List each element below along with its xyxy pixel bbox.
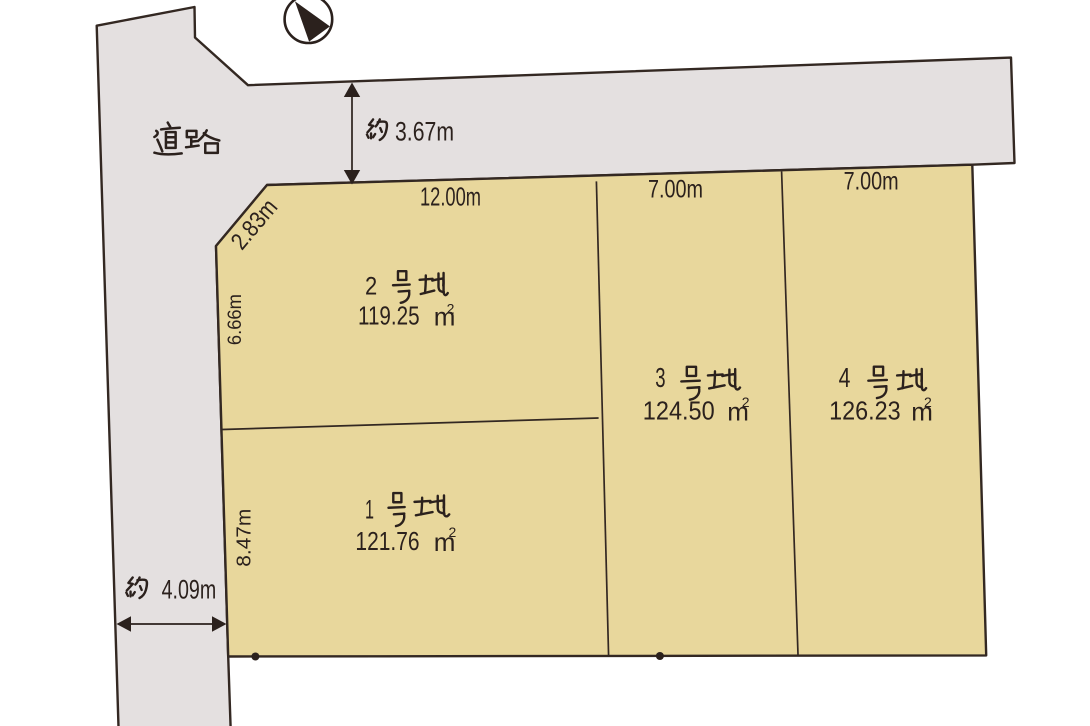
svg-text:2: 2 [449, 524, 457, 540]
svg-text:12.00m: 12.00m [420, 182, 481, 212]
svg-text:126.23: 126.23 [829, 396, 901, 426]
svg-text:2: 2 [365, 273, 377, 301]
svg-text:121.76: 121.76 [355, 526, 419, 556]
svg-text:3: 3 [655, 362, 665, 393]
svg-text:2: 2 [447, 301, 455, 317]
svg-text:3.67m: 3.67m [395, 117, 454, 147]
svg-text:6.66m: 6.66m [225, 294, 246, 345]
svg-text:1: 1 [365, 495, 374, 525]
svg-text:4.09m: 4.09m [162, 575, 217, 605]
svg-text:7.00m: 7.00m [648, 176, 703, 204]
svg-text:4: 4 [839, 362, 851, 393]
svg-text:2: 2 [742, 394, 750, 410]
svg-text:119.25: 119.25 [358, 301, 420, 331]
svg-text:7.00m: 7.00m [844, 168, 899, 196]
svg-text:8.47m: 8.47m [234, 509, 256, 567]
svg-text:124.50: 124.50 [643, 396, 715, 426]
svg-text:2: 2 [924, 394, 932, 410]
